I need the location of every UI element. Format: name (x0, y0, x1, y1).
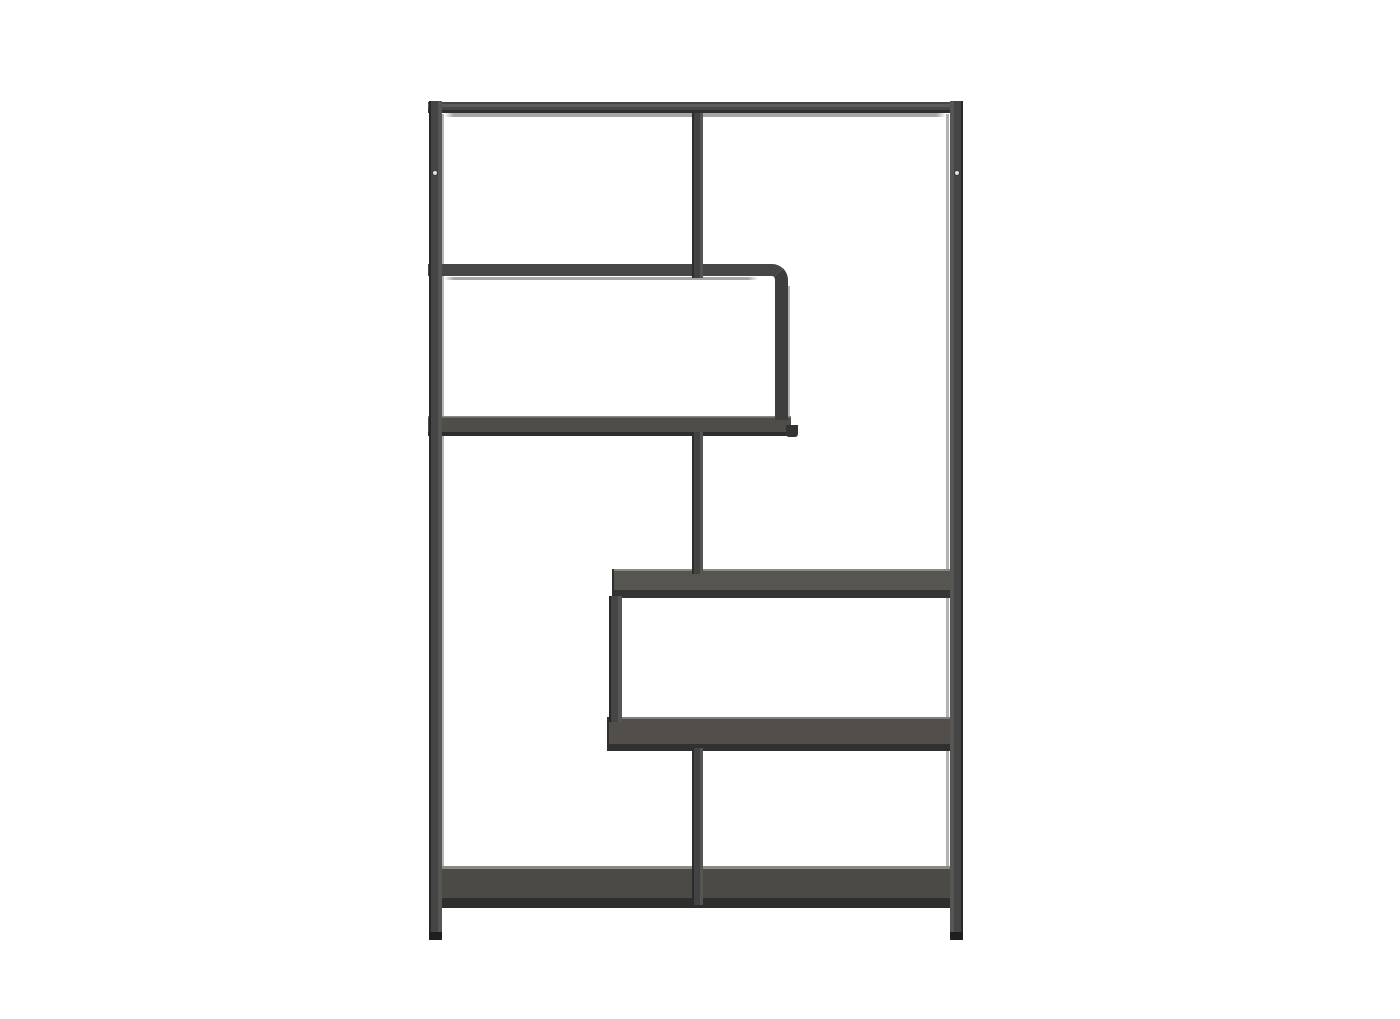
right-post-inner-highlight (946, 114, 949, 866)
product-photo (0, 0, 1400, 1019)
right-post (950, 101, 963, 940)
lower-right-shelf (607, 717, 953, 751)
mid-step-post (609, 596, 622, 722)
middle-right-shelf (612, 569, 953, 598)
left-foot (429, 932, 442, 940)
left-screw-cap (432, 170, 438, 176)
top-rail (428, 102, 963, 113)
upper-left-frame (428, 264, 788, 420)
upper-divider (692, 102, 703, 278)
corner-post-inner-highlight (788, 286, 790, 416)
middle-divider (692, 432, 703, 574)
left-post (429, 101, 442, 940)
shelf-end-bracket (786, 425, 798, 437)
right-foot (950, 932, 963, 940)
right-screw-cap (954, 170, 960, 176)
lower-divider (692, 748, 703, 905)
